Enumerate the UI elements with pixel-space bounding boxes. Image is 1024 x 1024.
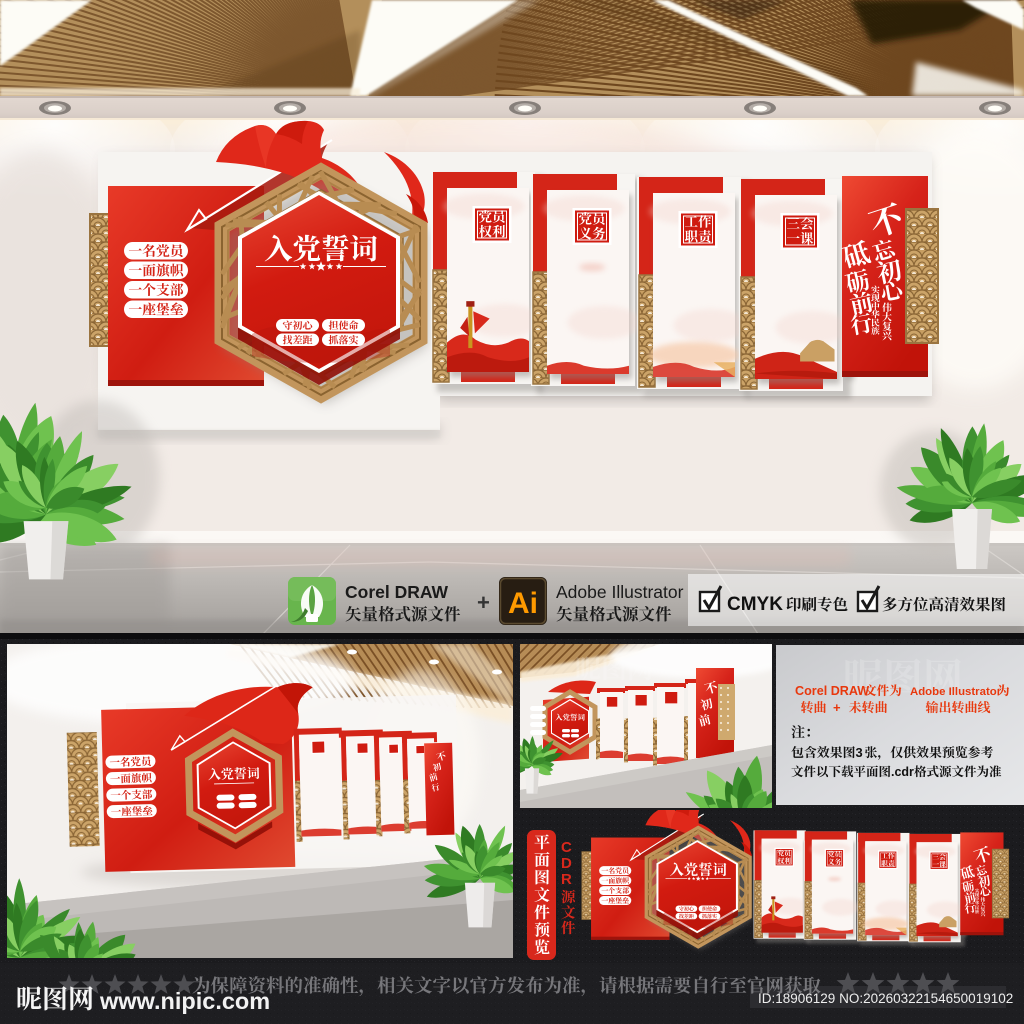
svg-text:R: R xyxy=(561,871,572,888)
svg-text:Ai: Ai xyxy=(508,587,538,620)
svg-text:Adobe Illustrator: Adobe Illustrator xyxy=(910,686,1002,698)
svg-text:Adobe Illustrator: Adobe Illustrator xyxy=(556,582,684,602)
svg-text:C: C xyxy=(561,839,572,856)
svg-text:ID:18906129 NO:202603221546500: ID:18906129 NO:20260322154650019102 xyxy=(758,991,1013,1006)
svg-text:D: D xyxy=(561,855,572,872)
svg-text:+: + xyxy=(477,590,490,615)
svg-text:.cdr: .cdr xyxy=(891,765,914,779)
svg-text:+: + xyxy=(833,700,841,715)
svg-text:CMYK: CMYK xyxy=(727,594,783,615)
svg-text:Corel DRAW: Corel DRAW xyxy=(345,582,449,602)
svg-text:3: 3 xyxy=(856,745,863,760)
svg-text:www.nipic.com: www.nipic.com xyxy=(99,988,270,1014)
svg-text:Corel DRAW: Corel DRAW xyxy=(795,684,869,698)
